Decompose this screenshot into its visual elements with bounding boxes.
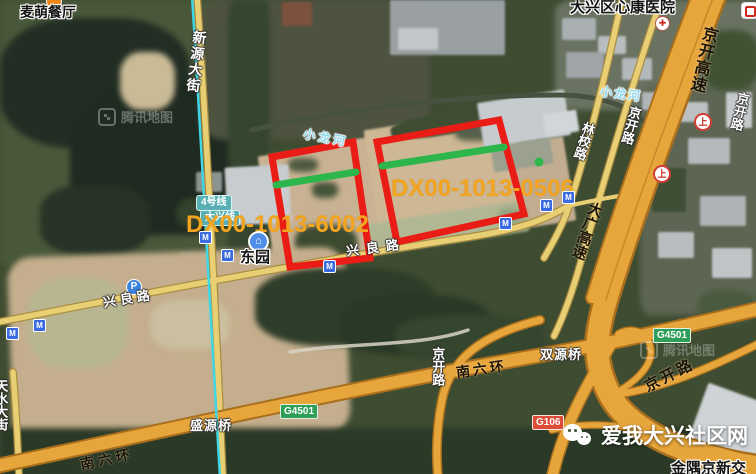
site-watermark: 爱我大兴社区网	[601, 425, 748, 448]
app-logo-icon	[741, 2, 756, 19]
metro-icon: M	[221, 249, 234, 262]
metro-icon: M	[199, 231, 212, 244]
road-network	[0, 0, 756, 474]
line4-bubble: 4号线	[196, 195, 232, 211]
poi-station-dongyuan: 东园	[240, 250, 270, 267]
wechat-icon	[563, 424, 595, 450]
green-dot	[535, 158, 544, 167]
road-label-jingkai-lu-3: 京开路	[430, 347, 444, 386]
highway-badge-g4501: G4501	[280, 404, 318, 419]
tencent-map-watermark: 腾讯地图	[98, 107, 173, 126]
highway-badge-g4501: G4501	[653, 328, 691, 343]
satellite-map: 腾讯地图 腾讯地图 麦萌餐厅 大兴区心康医院 ✚ 新源大街 京开高速 京开路 京…	[0, 0, 756, 474]
highway-badge-g106: G106	[532, 415, 564, 430]
metro-icon: M	[6, 327, 19, 340]
watermark-text: 腾讯地图	[121, 107, 173, 126]
metro-icon: M	[499, 217, 512, 230]
compass-icon	[98, 108, 116, 126]
parcel-label-6002: DX00-1013-6002	[186, 211, 369, 239]
jingkai-expressway-path	[597, 0, 756, 468]
poi-compound-bottom-right: 金隅京新交	[671, 461, 746, 474]
metro-icon: M	[323, 260, 336, 273]
metro-icon: M	[540, 199, 553, 212]
metro-icon: M	[562, 191, 575, 204]
metro-icon: M	[33, 319, 46, 332]
bridge-label-shengyuan: 盛源桥	[190, 419, 232, 433]
parcel-6002-green-line	[276, 172, 356, 185]
gate-icon: 上	[694, 113, 712, 131]
poi-hospital: 大兴区心康医院	[570, 0, 675, 17]
parcel-0506-green-line	[382, 147, 504, 166]
compass-icon	[640, 341, 658, 359]
hospital-cross-icon: ✚	[655, 16, 670, 31]
gate-icon: 上	[653, 165, 671, 183]
poi-restaurant: 麦萌餐厅	[20, 5, 76, 20]
bridge-label-shuangyuan: 双源桥	[540, 348, 582, 362]
road-label-tianshui: 天水大街	[0, 379, 7, 431]
